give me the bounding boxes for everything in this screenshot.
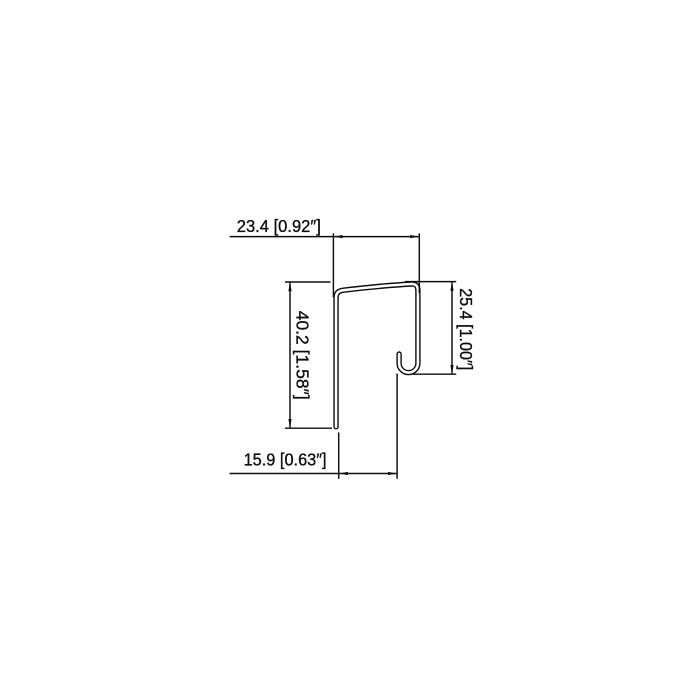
- svg-text:23.4 [0.92″]: 23.4 [0.92″]: [237, 216, 321, 236]
- svg-text:40.2 [1.58″]: 40.2 [1.58″]: [292, 311, 312, 400]
- svg-text:15.9 [0.63″]: 15.9 [0.63″]: [244, 450, 327, 470]
- svg-text:25.4 [1.00″]: 25.4 [1.00″]: [456, 288, 476, 370]
